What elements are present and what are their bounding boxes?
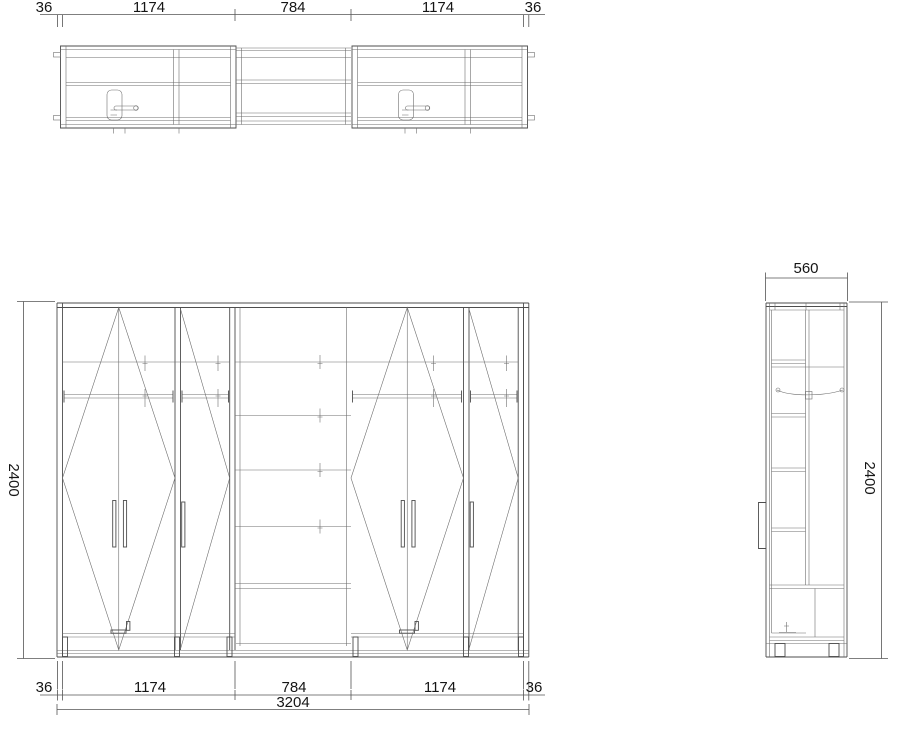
dim-bottom-right-36: 36 [526,679,543,696]
front-base [57,637,529,657]
plan-view [54,46,535,134]
dimension-row-total: 3204 [57,694,529,715]
dim-bottom-1174-left: 1174 [134,679,166,696]
dim-top-1174-left: 1174 [133,0,165,16]
wardrobe-drawing: 36 1174 784 1174 36 [0,0,921,735]
dim-bottom-left-36: 36 [36,679,53,696]
front-middle-shelves [235,308,351,647]
dim-bottom-1174-right: 1174 [424,679,456,696]
dim-top-1174-right: 1174 [422,0,454,16]
dim-top-784: 784 [280,0,305,16]
technical-drawing-page: 36 1174 784 1174 36 [0,0,921,735]
dimension-front-height: 2400 [5,302,55,659]
dimension-side-depth: 560 [766,260,848,301]
dimension-side-height: 2400 [849,302,888,659]
side-elevation [759,303,848,657]
dim-depth-560: 560 [793,260,818,277]
dim-top-right-36: 36 [525,0,542,16]
dimension-row-top: 36 1174 784 1174 36 [36,0,545,27]
dim-top-left-36: 36 [36,0,53,16]
dim-height-left-2400: 2400 [5,463,22,496]
side-rail-bracket-icon [776,388,844,399]
dim-height-right-2400: 2400 [861,461,878,494]
plan-middle-unit [236,48,351,125]
side-damper-icon [779,622,796,633]
front-elevation [57,303,529,657]
dim-total-3204: 3204 [276,694,309,711]
side-handle-icon [759,503,767,549]
